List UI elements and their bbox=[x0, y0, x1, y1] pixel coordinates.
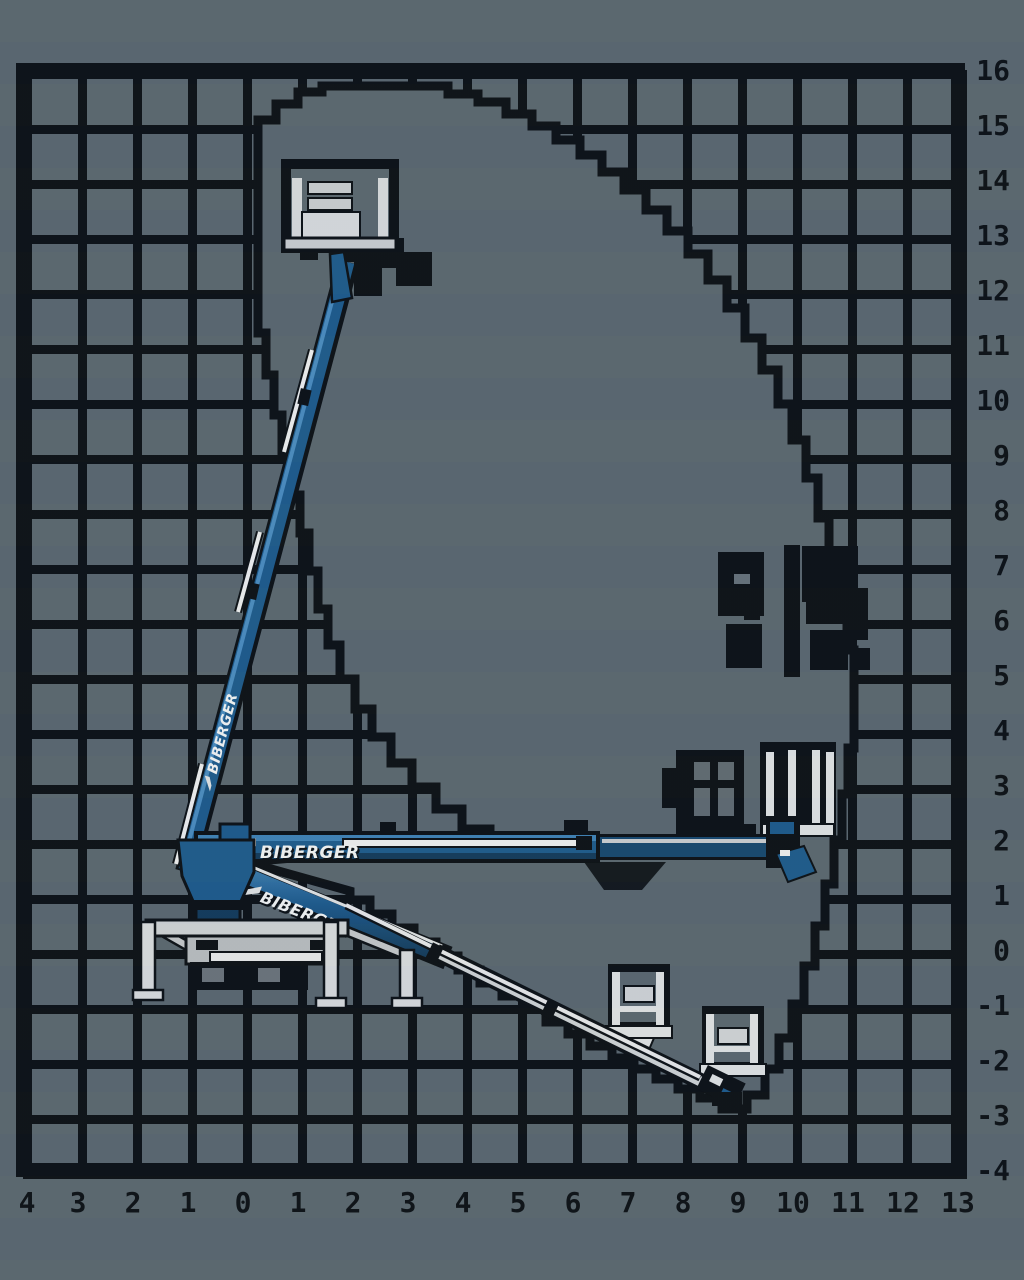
y-axis-label: 13 bbox=[976, 219, 1010, 252]
y-axis-label: 9 bbox=[993, 439, 1010, 472]
basket-outline-low-2 bbox=[700, 1006, 766, 1076]
x-axis-label: 5 bbox=[510, 1186, 527, 1219]
y-axis: 16 15 14 13 12 11 10 9 8 7 6 5 4 3 2 1 0… bbox=[976, 54, 1010, 1187]
x-axis-label: 10 bbox=[776, 1186, 810, 1219]
y-axis-label: -2 bbox=[976, 1044, 1010, 1077]
y-axis-label: 2 bbox=[993, 824, 1010, 857]
y-axis-label: 16 bbox=[976, 54, 1010, 87]
y-axis-label: 0 bbox=[993, 934, 1010, 967]
x-axis-label: 3 bbox=[70, 1186, 87, 1219]
x-axis-label: 13 bbox=[941, 1186, 975, 1219]
y-axis-label: 5 bbox=[993, 659, 1010, 692]
x-axis-label: 4 bbox=[19, 1186, 36, 1219]
x-axis-label: 8 bbox=[675, 1186, 692, 1219]
x-axis-label: 11 bbox=[831, 1186, 865, 1219]
reach-diagram: BIBERGER BIBERGER BIBERGER bbox=[0, 0, 1024, 1280]
x-axis-label: 3 bbox=[400, 1186, 417, 1219]
y-axis-label: 1 bbox=[993, 879, 1010, 912]
y-axis-label: 14 bbox=[976, 164, 1010, 197]
diagram-canvas: BIBERGER BIBERGER BIBERGER bbox=[0, 0, 1024, 1280]
y-axis-label: -1 bbox=[976, 989, 1010, 1022]
work-platform-top bbox=[284, 164, 396, 260]
y-axis-label: 10 bbox=[976, 384, 1010, 417]
x-axis-label: 9 bbox=[730, 1186, 747, 1219]
x-axis-label: 2 bbox=[345, 1186, 362, 1219]
x-axis-label: 6 bbox=[565, 1186, 582, 1219]
x-axis-label: 7 bbox=[620, 1186, 637, 1219]
y-axis-label: 12 bbox=[976, 274, 1010, 307]
y-axis-label: 11 bbox=[976, 329, 1010, 362]
y-axis-label: 15 bbox=[976, 109, 1010, 142]
brand-label: BIBERGER bbox=[260, 843, 360, 863]
y-axis-label: -4 bbox=[976, 1154, 1010, 1187]
x-axis-label: 1 bbox=[290, 1186, 307, 1219]
x-axis: 4 3 2 1 0 1 2 3 4 5 6 7 8 9 10 11 12 13 bbox=[19, 1186, 975, 1219]
y-axis-label: 7 bbox=[993, 549, 1010, 582]
basket-silhouette-max-outreach bbox=[718, 545, 870, 677]
y-axis-label: -3 bbox=[976, 1099, 1010, 1132]
y-axis-label: 8 bbox=[993, 494, 1010, 527]
x-axis-label: 1 bbox=[180, 1186, 197, 1219]
x-axis-label: 2 bbox=[125, 1186, 142, 1219]
x-axis-label: 4 bbox=[455, 1186, 472, 1219]
x-axis-label: 0 bbox=[235, 1186, 252, 1219]
y-axis-label: 6 bbox=[993, 604, 1010, 637]
x-axis-label: 12 bbox=[886, 1186, 920, 1219]
y-axis-label: 3 bbox=[993, 769, 1010, 802]
y-axis-label: 4 bbox=[993, 714, 1010, 747]
